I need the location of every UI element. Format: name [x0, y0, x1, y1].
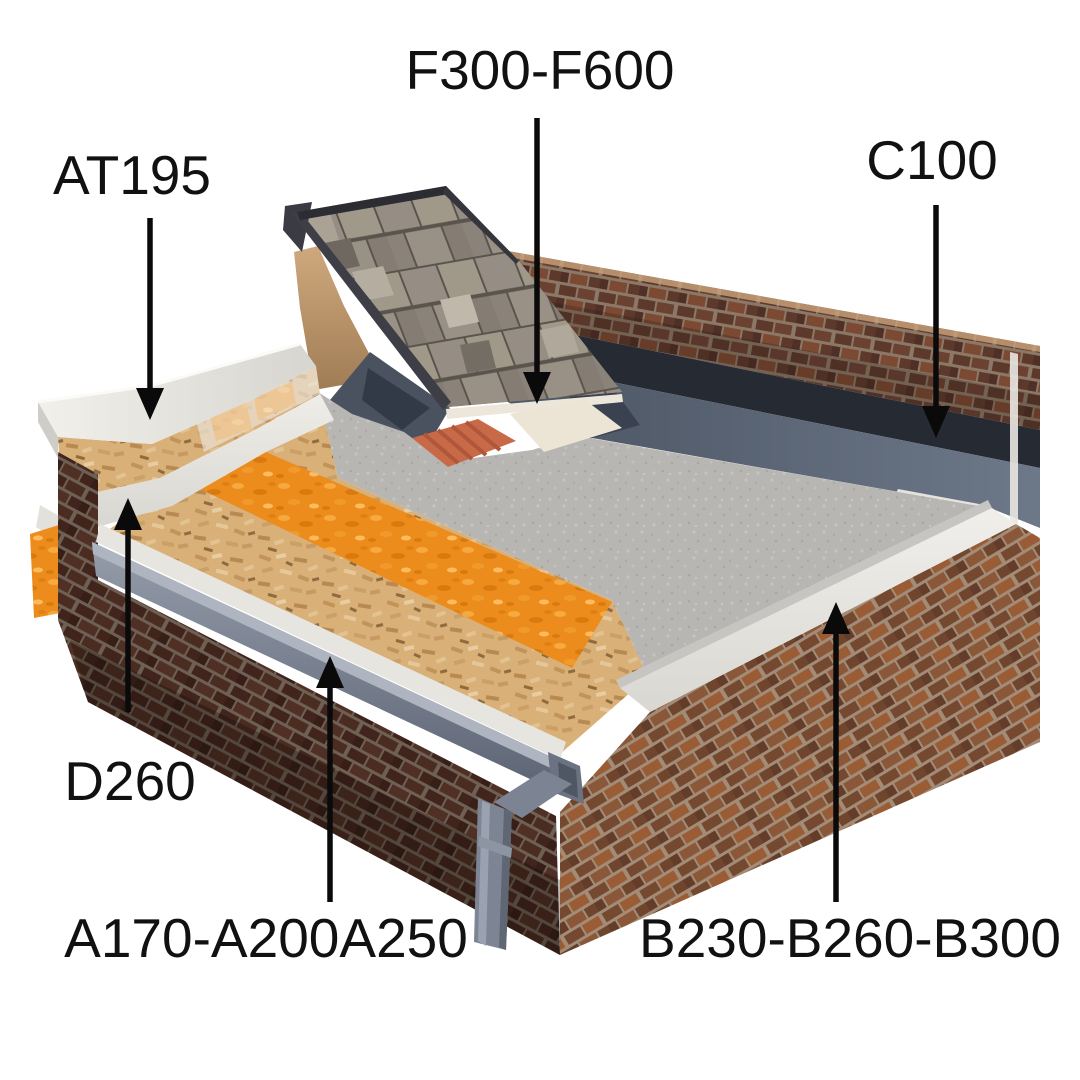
label-c100: C100	[866, 132, 997, 190]
label-b230-b260-b300: B230-B260-B300	[639, 910, 1061, 968]
corner-trim-sliver	[1010, 352, 1018, 524]
label-f300-f600: F300-F600	[405, 42, 674, 100]
label-a170-a200-a250: A170-A200A250	[64, 910, 468, 968]
arrow-at195	[136, 218, 164, 420]
label-d260: D260	[64, 753, 195, 811]
diagram-canvas: F300-F600 AT195 C100 D260 A170-A200A250 …	[0, 0, 1080, 1080]
label-at195: AT195	[53, 147, 211, 205]
